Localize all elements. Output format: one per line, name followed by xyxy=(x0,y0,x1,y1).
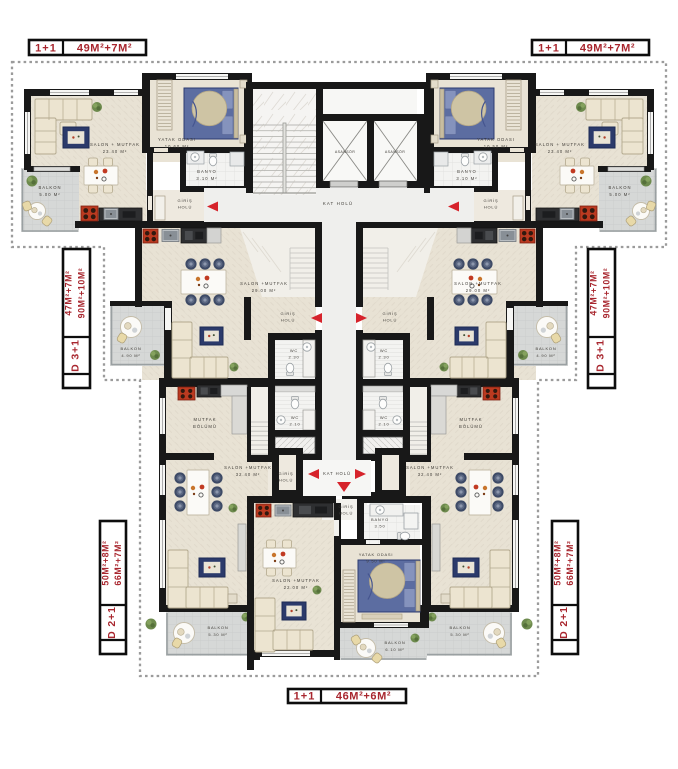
svg-text:WC: WC xyxy=(380,348,388,353)
svg-text:46M²+6M²: 46M²+6M² xyxy=(336,691,391,703)
svg-text:MUTFAK: MUTFAK xyxy=(194,417,217,422)
svg-text:BANYO: BANYO xyxy=(197,169,217,174)
svg-text:SALON +MUTFAK: SALON +MUTFAK xyxy=(224,465,272,470)
svg-text:HOLÜ: HOLÜ xyxy=(383,318,397,323)
svg-text:D 2+1: D 2+1 xyxy=(558,606,570,639)
svg-text:WC: WC xyxy=(291,415,299,420)
svg-text:3.50: 3.50 xyxy=(375,524,386,529)
svg-text:HOLÜ: HOLÜ xyxy=(339,511,353,516)
svg-text:BALKON: BALKON xyxy=(120,346,141,351)
svg-text:GİRİŞ: GİRİŞ xyxy=(178,198,193,203)
svg-text:6.10 M²: 6.10 M² xyxy=(385,647,404,652)
svg-text:SALON + MUTFAK: SALON + MUTFAK xyxy=(90,142,140,147)
svg-text:5.30 M²: 5.30 M² xyxy=(208,632,227,637)
svg-text:SALON +MUTFAK: SALON +MUTFAK xyxy=(240,281,288,286)
svg-text:90M²+10M²: 90M²+10M² xyxy=(602,268,612,319)
svg-text:3.10 M²: 3.10 M² xyxy=(196,176,217,181)
svg-text:47M²+7M²: 47M²+7M² xyxy=(589,270,599,315)
svg-text:4.90 M²: 4.90 M² xyxy=(536,353,555,358)
svg-text:5.00 M²: 5.00 M² xyxy=(609,192,630,197)
svg-text:32.40 M²: 32.40 M² xyxy=(418,472,443,477)
svg-text:BALKON: BALKON xyxy=(39,185,62,190)
svg-text:GİRİŞ: GİRİŞ xyxy=(484,198,499,203)
svg-text:50M²+8M²: 50M²+8M² xyxy=(100,540,110,585)
svg-text:BANYO: BANYO xyxy=(457,169,477,174)
svg-text:HOLÜ: HOLÜ xyxy=(484,205,498,210)
svg-text:SALON +MUTFAK: SALON +MUTFAK xyxy=(272,578,320,583)
svg-text:10.50 M²: 10.50 M² xyxy=(484,144,509,149)
svg-text:ASANSÖR: ASANSÖR xyxy=(385,150,405,154)
svg-text:BALKON: BALKON xyxy=(449,625,470,630)
svg-text:BALKON: BALKON xyxy=(207,625,228,630)
svg-text:ASANSÖR: ASANSÖR xyxy=(335,150,355,154)
svg-text:5.00 M²: 5.00 M² xyxy=(39,192,60,197)
svg-text:4.90 M²: 4.90 M² xyxy=(121,353,140,358)
svg-text:50M²+8M²: 50M²+8M² xyxy=(552,540,562,585)
svg-text:29.00 M²: 29.00 M² xyxy=(466,288,491,293)
svg-text:BALKON: BALKON xyxy=(384,640,405,645)
svg-text:GİRİŞ: GİRİŞ xyxy=(339,504,354,509)
svg-text:2.30: 2.30 xyxy=(379,355,390,360)
svg-text:YATAK ODASI: YATAK ODASI xyxy=(359,552,394,557)
svg-text:32.40 M²: 32.40 M² xyxy=(236,472,261,477)
svg-text:WC: WC xyxy=(290,348,298,353)
svg-text:66M²+7M²: 66M²+7M² xyxy=(565,540,575,585)
svg-text:22.00 M²: 22.00 M² xyxy=(284,585,309,590)
svg-text:SALON + MUTFAK: SALON + MUTFAK xyxy=(535,142,585,147)
svg-text:HOLÜ: HOLÜ xyxy=(281,318,295,323)
svg-text:BÖLÜMÜ: BÖLÜMÜ xyxy=(459,424,483,429)
svg-text:9.50 M²: 9.50 M² xyxy=(366,559,385,564)
svg-text:BANYO: BANYO xyxy=(371,517,389,522)
svg-text:YATAK ODASI: YATAK ODASI xyxy=(477,137,515,142)
svg-text:GİRİŞ: GİRİŞ xyxy=(281,311,296,316)
svg-text:10.60 M²: 10.60 M² xyxy=(165,144,190,149)
svg-text:GİRİŞ: GİRİŞ xyxy=(279,471,294,476)
svg-text:2.30: 2.30 xyxy=(289,355,300,360)
svg-text:SALON +MUTFAK: SALON +MUTFAK xyxy=(454,281,502,286)
svg-text:1+1: 1+1 xyxy=(35,43,57,55)
svg-text:HOLÜ: HOLÜ xyxy=(178,205,192,210)
svg-text:23.40 M²: 23.40 M² xyxy=(548,149,573,154)
svg-text:2.10: 2.10 xyxy=(379,422,390,427)
svg-text:1+1: 1+1 xyxy=(538,43,560,55)
svg-text:BALKON: BALKON xyxy=(609,185,632,190)
svg-text:GİRİŞ: GİRİŞ xyxy=(383,311,398,316)
svg-text:5.30 M²: 5.30 M² xyxy=(450,632,469,637)
svg-text:66M²+7M²: 66M²+7M² xyxy=(113,540,123,585)
svg-text:YATAK ODASI: YATAK ODASI xyxy=(158,137,196,142)
svg-text:BÖLÜMÜ: BÖLÜMÜ xyxy=(193,424,217,429)
svg-text:WC: WC xyxy=(380,415,388,420)
svg-text:SALON +MUTFAK: SALON +MUTFAK xyxy=(406,465,454,470)
svg-text:D 2+1: D 2+1 xyxy=(106,606,118,639)
svg-text:47M²+7M²: 47M²+7M² xyxy=(64,270,74,315)
svg-text:BALKON: BALKON xyxy=(535,346,556,351)
svg-text:HOLÜ: HOLÜ xyxy=(279,478,293,483)
svg-text:49M²+7M²: 49M²+7M² xyxy=(77,43,132,55)
svg-text:KAT HOLÜ: KAT HOLÜ xyxy=(323,471,351,476)
svg-text:2.10: 2.10 xyxy=(290,422,301,427)
svg-text:90M²+10M²: 90M²+10M² xyxy=(77,268,87,319)
svg-text:D 3+1: D 3+1 xyxy=(594,339,606,372)
svg-text:MUTFAK: MUTFAK xyxy=(460,417,483,422)
svg-text:1+1: 1+1 xyxy=(294,691,316,703)
svg-text:23.40 M²: 23.40 M² xyxy=(103,149,128,154)
svg-text:29.00 M²: 29.00 M² xyxy=(252,288,277,293)
svg-text:KAT HOLÜ: KAT HOLÜ xyxy=(323,201,353,206)
svg-text:49M²+7M²: 49M²+7M² xyxy=(580,43,635,55)
svg-text:D 3+1: D 3+1 xyxy=(69,339,81,372)
svg-text:3.10 M²: 3.10 M² xyxy=(456,176,477,181)
